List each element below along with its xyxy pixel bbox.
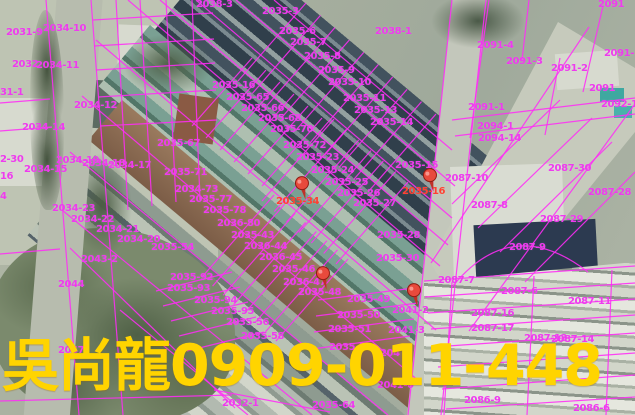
parcel-label: 2035-72 — [283, 141, 326, 151]
parcel-label: 31-1 — [0, 88, 23, 98]
parcel-label: 2031-9 — [6, 28, 43, 38]
parcel-label: 2094-1 — [477, 122, 514, 132]
parcel-label: 2035-64 — [312, 401, 355, 411]
parcel-label: 2044 — [58, 280, 84, 290]
parcel-label: 2035-10 — [328, 78, 371, 88]
parcel-label: 2087-9 — [509, 243, 546, 253]
parcel-label: 16 — [0, 172, 13, 182]
satellite-map-viewport[interactable]: 2031-92034-1020322034-1131-12034-122034-… — [0, 0, 635, 415]
parcel-label: 2035-93 — [167, 284, 210, 294]
parcel-label: 2087-7 — [438, 276, 475, 286]
parcel-label: 2035-71 — [164, 168, 207, 178]
parcel-label: 2035-56 — [226, 318, 269, 328]
parcel-label: 2034-14 — [22, 123, 65, 133]
parcel-label: 2035-11 — [343, 94, 386, 104]
parcel-label: 2087-30 — [548, 164, 591, 174]
parcel-label: 2-30 — [0, 155, 23, 165]
parcel-label: 2035-65 — [226, 93, 269, 103]
parcel-label: 2038-3 — [196, 0, 233, 10]
parcel-label: 2035-3 — [262, 7, 299, 17]
parcel-label: 2035-9 — [318, 66, 355, 76]
parcel-label: 2092-1 — [601, 100, 635, 110]
parcel-label: 2035-68 — [258, 114, 301, 124]
parcel-label: 2034-17 — [108, 161, 151, 171]
advertiser-watermark: 吳尚龍0909-011-448 — [2, 330, 635, 402]
parcel-label: 2043-2 — [81, 255, 118, 265]
parcel-label: 2035-30 — [376, 254, 419, 264]
parcel-label: 2035-23 — [296, 153, 339, 163]
parcel-label: 2035-92 — [170, 273, 213, 283]
parcel-label: 2035-78 — [203, 206, 246, 216]
parcel-label: 2035-46 — [272, 265, 315, 275]
parcel-label: 2035-54 — [151, 243, 194, 253]
parcel-label: 2035-50 — [337, 311, 380, 321]
parcel-label: 2091-1 — [468, 103, 505, 113]
parcel-label: 2035-49 — [347, 295, 390, 305]
parcel-label: 2035-27 — [353, 199, 396, 209]
parcel-label: 2091- — [604, 49, 634, 59]
parcel-label: 2035-94 — [194, 296, 237, 306]
parcel-label: 2034-10 — [43, 24, 86, 34]
parcel-label: 2035-16 — [212, 81, 255, 91]
parcel-label: 2091-3 — [506, 57, 543, 67]
parcel-label: 2035-13 — [354, 106, 397, 116]
parcel-label: 4 — [0, 192, 7, 202]
parcel-label: 2035-43 — [231, 231, 274, 241]
parcel-label: 2035-7 — [290, 38, 327, 48]
parcel-label: 2087-28 — [588, 188, 631, 198]
parcel-label: 2035-24 — [311, 166, 354, 176]
parcel-label: 2087-16 — [471, 309, 514, 319]
parcel-label: 2091 — [598, 0, 624, 10]
parcel-label: 2035-95 — [211, 307, 254, 317]
parcel-label: 2038-1 — [375, 27, 412, 37]
parcel-label: 2036-44 — [244, 242, 287, 252]
parcel-label: 2086-6 — [573, 404, 610, 414]
parcel-label: 2036-45 — [259, 253, 302, 263]
parcel-label: 2035-14 — [370, 118, 413, 128]
parcel-label: 2087-29 — [540, 215, 583, 225]
parcel-label: 2035-77 — [189, 195, 232, 205]
parcel-label: 2087-11 — [568, 297, 611, 307]
parcel-label: 2034-12 — [74, 101, 117, 111]
parcel-label: 2035-25 — [325, 178, 368, 188]
parcel-label: 2034-15 — [24, 165, 67, 175]
parcel-label: 2087-10 — [445, 174, 488, 184]
parcel-label: 2091-4 — [477, 41, 514, 51]
parcel-label: 2034-11 — [36, 61, 79, 71]
parcel-label: 2034-23 — [52, 204, 95, 214]
parcel-label: 2035-28 — [377, 231, 420, 241]
parcel-label: 2035-67 — [157, 139, 200, 149]
parcel-label: 2091 — [589, 84, 615, 94]
parcel-label: 2087-6 — [501, 287, 538, 297]
parcel-label: 2035-8 — [304, 52, 341, 62]
parcel-label: 2035-70 — [270, 125, 313, 135]
parcel-label: 2087-8 — [471, 201, 508, 211]
parcel-label: 2035-6 — [279, 27, 316, 37]
parcel-label: 2094-14 — [478, 134, 521, 144]
parcel-label: 2091-2 — [551, 64, 588, 74]
parcel-label: 2032 — [12, 60, 38, 70]
parcel-label: 2036-80 — [217, 219, 260, 229]
